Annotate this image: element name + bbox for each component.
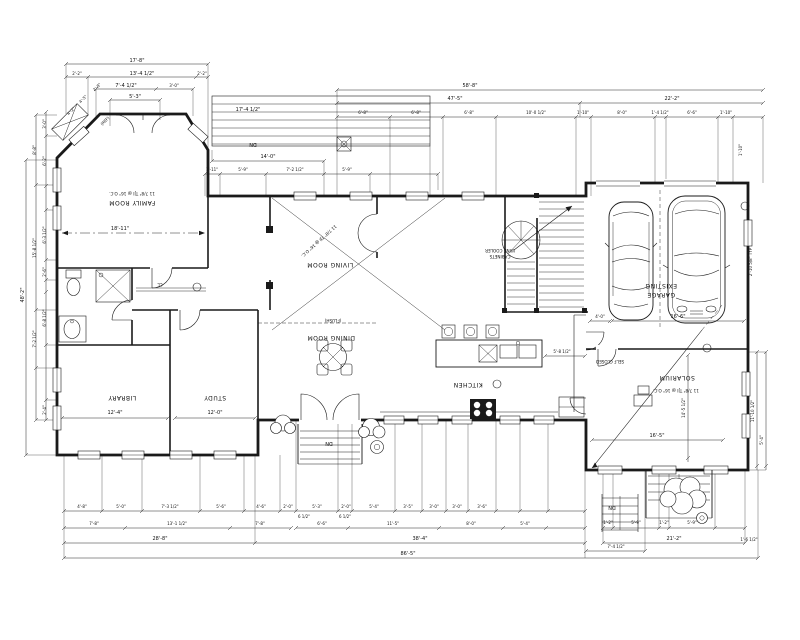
dim-label: 38'-4"	[412, 536, 427, 542]
window	[53, 368, 61, 392]
floor-plan-canvas: 17'-8" 2'-2" 13'-4 1/2" 2'-2" 7'-4 1/2" …	[0, 0, 800, 640]
dim-label: 2'-0"	[283, 504, 293, 509]
dim-label: 4'-8"	[77, 504, 87, 509]
dim-label: 6'-8"	[411, 110, 421, 115]
dim-label: 7'-2 1/2"	[32, 330, 37, 347]
window	[704, 466, 728, 474]
door-note: SELF CLOSED	[596, 359, 624, 364]
dim-label: 1'-11"	[206, 167, 218, 172]
dim-label: 3'-6"	[477, 504, 487, 509]
dim-label: 5'-9"	[238, 167, 248, 172]
wine-note-1: WINE COOLER	[485, 248, 515, 253]
dim-label: 12'-4"	[107, 410, 122, 416]
dim-label: 5'-4"	[759, 435, 764, 445]
dim-label: 2'-0"	[341, 504, 351, 509]
room-label-family: FAMILY ROOM	[109, 199, 155, 206]
window	[418, 416, 438, 424]
dim-label: 58'-8"	[462, 83, 477, 89]
window	[53, 206, 61, 230]
dim-label: 1'-10"	[720, 110, 732, 115]
window	[78, 451, 100, 459]
dim-label: 13'-1 1/2"	[167, 521, 187, 526]
dim-label: 5'-6"	[216, 504, 226, 509]
joist-note: 11 7/8" TJI @ 16" O.C.	[653, 388, 699, 393]
dim-label: 5'-3"	[129, 94, 141, 100]
window	[384, 416, 404, 424]
window	[53, 168, 61, 192]
dim-label: 1'-4 1/2"	[651, 110, 668, 115]
dim-label: 3'-0"	[429, 504, 439, 509]
dim-label: 18'-11"	[111, 226, 129, 232]
closet-label: CL	[157, 282, 163, 287]
dim-label: 28'-8"	[152, 536, 167, 542]
room-label-garage-2: GARAGE	[647, 291, 675, 298]
flush-note: (FLUSH)	[324, 318, 341, 323]
dim-label: 7'-2 1/2"	[286, 167, 303, 172]
dim-label: 1'-10"	[577, 110, 589, 115]
joist-note: 11 7/8" TJI @ 16" O.C.	[109, 191, 155, 196]
dim-label: 1'-2"	[603, 520, 613, 525]
dim-label: 6'-6"	[687, 110, 697, 115]
down-label: DN	[608, 504, 616, 510]
down-label: DN	[325, 440, 333, 446]
dim-label: 2'-6"	[42, 267, 47, 277]
dim-label: 6'-2"	[42, 156, 47, 166]
dim-label: 5'-3"	[312, 504, 322, 509]
dim-label: 1'-2"	[659, 520, 669, 525]
dim-label: 6 1/2"	[339, 514, 351, 519]
room-label-solarium: SOLARIUM	[659, 374, 695, 381]
dim-label: 3'-0"	[452, 504, 462, 509]
window	[294, 192, 316, 200]
dim-label: 5'-4"	[369, 504, 379, 509]
window	[406, 192, 428, 200]
dim-label: 21'-2"	[666, 536, 681, 542]
dim-label: 7'-3 1/2"	[161, 504, 178, 509]
dim-label: 3'-0"	[169, 83, 179, 88]
dim-label: 6'-8"	[464, 110, 474, 115]
cooktop	[470, 399, 496, 419]
dim-label: 5'-0"	[116, 504, 126, 509]
dim-label: 4'-0"	[595, 314, 605, 319]
window	[462, 192, 484, 200]
dim-label: 10'-0 1/2"	[526, 110, 546, 115]
down-label: DN	[249, 141, 257, 147]
room-label-dining: DINING ROOM	[307, 334, 355, 341]
dim-label: 2'-2"	[72, 71, 82, 76]
window	[122, 451, 144, 459]
dim-label: 13'-4 1/2"	[130, 71, 155, 77]
dim-label: 15'-8 1/2"	[32, 238, 37, 258]
dim-label: 16'-5"	[649, 433, 664, 439]
dim-label: 8'-8"	[32, 145, 37, 155]
dim-label: 47'-5"	[447, 96, 462, 102]
window	[742, 372, 750, 396]
dim-label: 4'-6"	[256, 504, 266, 509]
dim-label: 5'-9"	[631, 520, 641, 525]
dim-label: 5'-9"	[342, 167, 352, 172]
dim-label: 16'-6"	[670, 314, 685, 320]
window	[742, 414, 750, 438]
dim-label: 2'-2"	[197, 71, 207, 76]
dim-label: 6'-8 1/2"	[42, 309, 47, 326]
dim-label: 11'-5"	[387, 521, 399, 526]
dim-label: 6'-6"	[317, 521, 327, 526]
room-label-kitchen: KITCHEN	[453, 381, 483, 388]
dim-label: 8'-0"	[617, 110, 627, 115]
dim-label: 86'-5"	[400, 551, 415, 557]
window	[214, 451, 236, 459]
dim-label: 2'-10 5/8" TYP	[748, 247, 753, 276]
dim-label: 7'-4 1/2"	[607, 544, 624, 549]
room-label-living: LIVING ROOM	[307, 261, 353, 268]
dim-label: 5'-4"	[520, 521, 530, 526]
dim-label: 1'-10"	[738, 144, 743, 156]
dim-label: 6'-8"	[358, 110, 368, 115]
room-label-study: STUDY	[204, 394, 226, 401]
dim-label: 3'-5"	[403, 504, 413, 509]
room-label-library: LIBRARY	[108, 394, 136, 401]
window	[350, 192, 372, 200]
dim-label: 14'-5 1/2"	[681, 398, 686, 418]
dim-label: 2'-4"	[42, 405, 47, 415]
dim-label: 12'-0"	[207, 410, 222, 416]
dim-label: 3'-0"	[42, 119, 47, 129]
window	[534, 416, 554, 424]
wine-note-2: CABINETS	[489, 254, 510, 259]
dim-label: 11'-10 1/2"	[750, 400, 755, 422]
window	[452, 416, 472, 424]
dim-label: 8'-0"	[466, 521, 476, 526]
window	[500, 416, 520, 424]
dim-label: 6 1/2"	[298, 514, 310, 519]
window	[652, 466, 676, 474]
dim-label: 7'-8"	[89, 521, 99, 526]
dim-label: 7'-8"	[255, 521, 265, 526]
dim-label: 6'-3 1/2"	[42, 226, 47, 243]
dim-label: 7'-4 1/2"	[115, 83, 136, 89]
dim-label: 14'-0"	[260, 154, 275, 160]
dim-label: 17'-4 1/2"	[236, 107, 261, 113]
dim-label: 1'-6 1/2"	[740, 537, 757, 542]
window	[170, 451, 192, 459]
room-label-garage-1: EXISTING	[645, 282, 677, 289]
dim-label: 22'-2"	[664, 96, 679, 102]
window	[744, 220, 752, 246]
dim-label: 5'-8 1/2"	[553, 349, 570, 354]
dim-label: 48'-2"	[20, 287, 26, 302]
dim-label: 17'-8"	[129, 58, 144, 64]
dim-label: 5'-9"	[687, 520, 697, 525]
window	[53, 406, 61, 430]
window	[598, 466, 622, 474]
